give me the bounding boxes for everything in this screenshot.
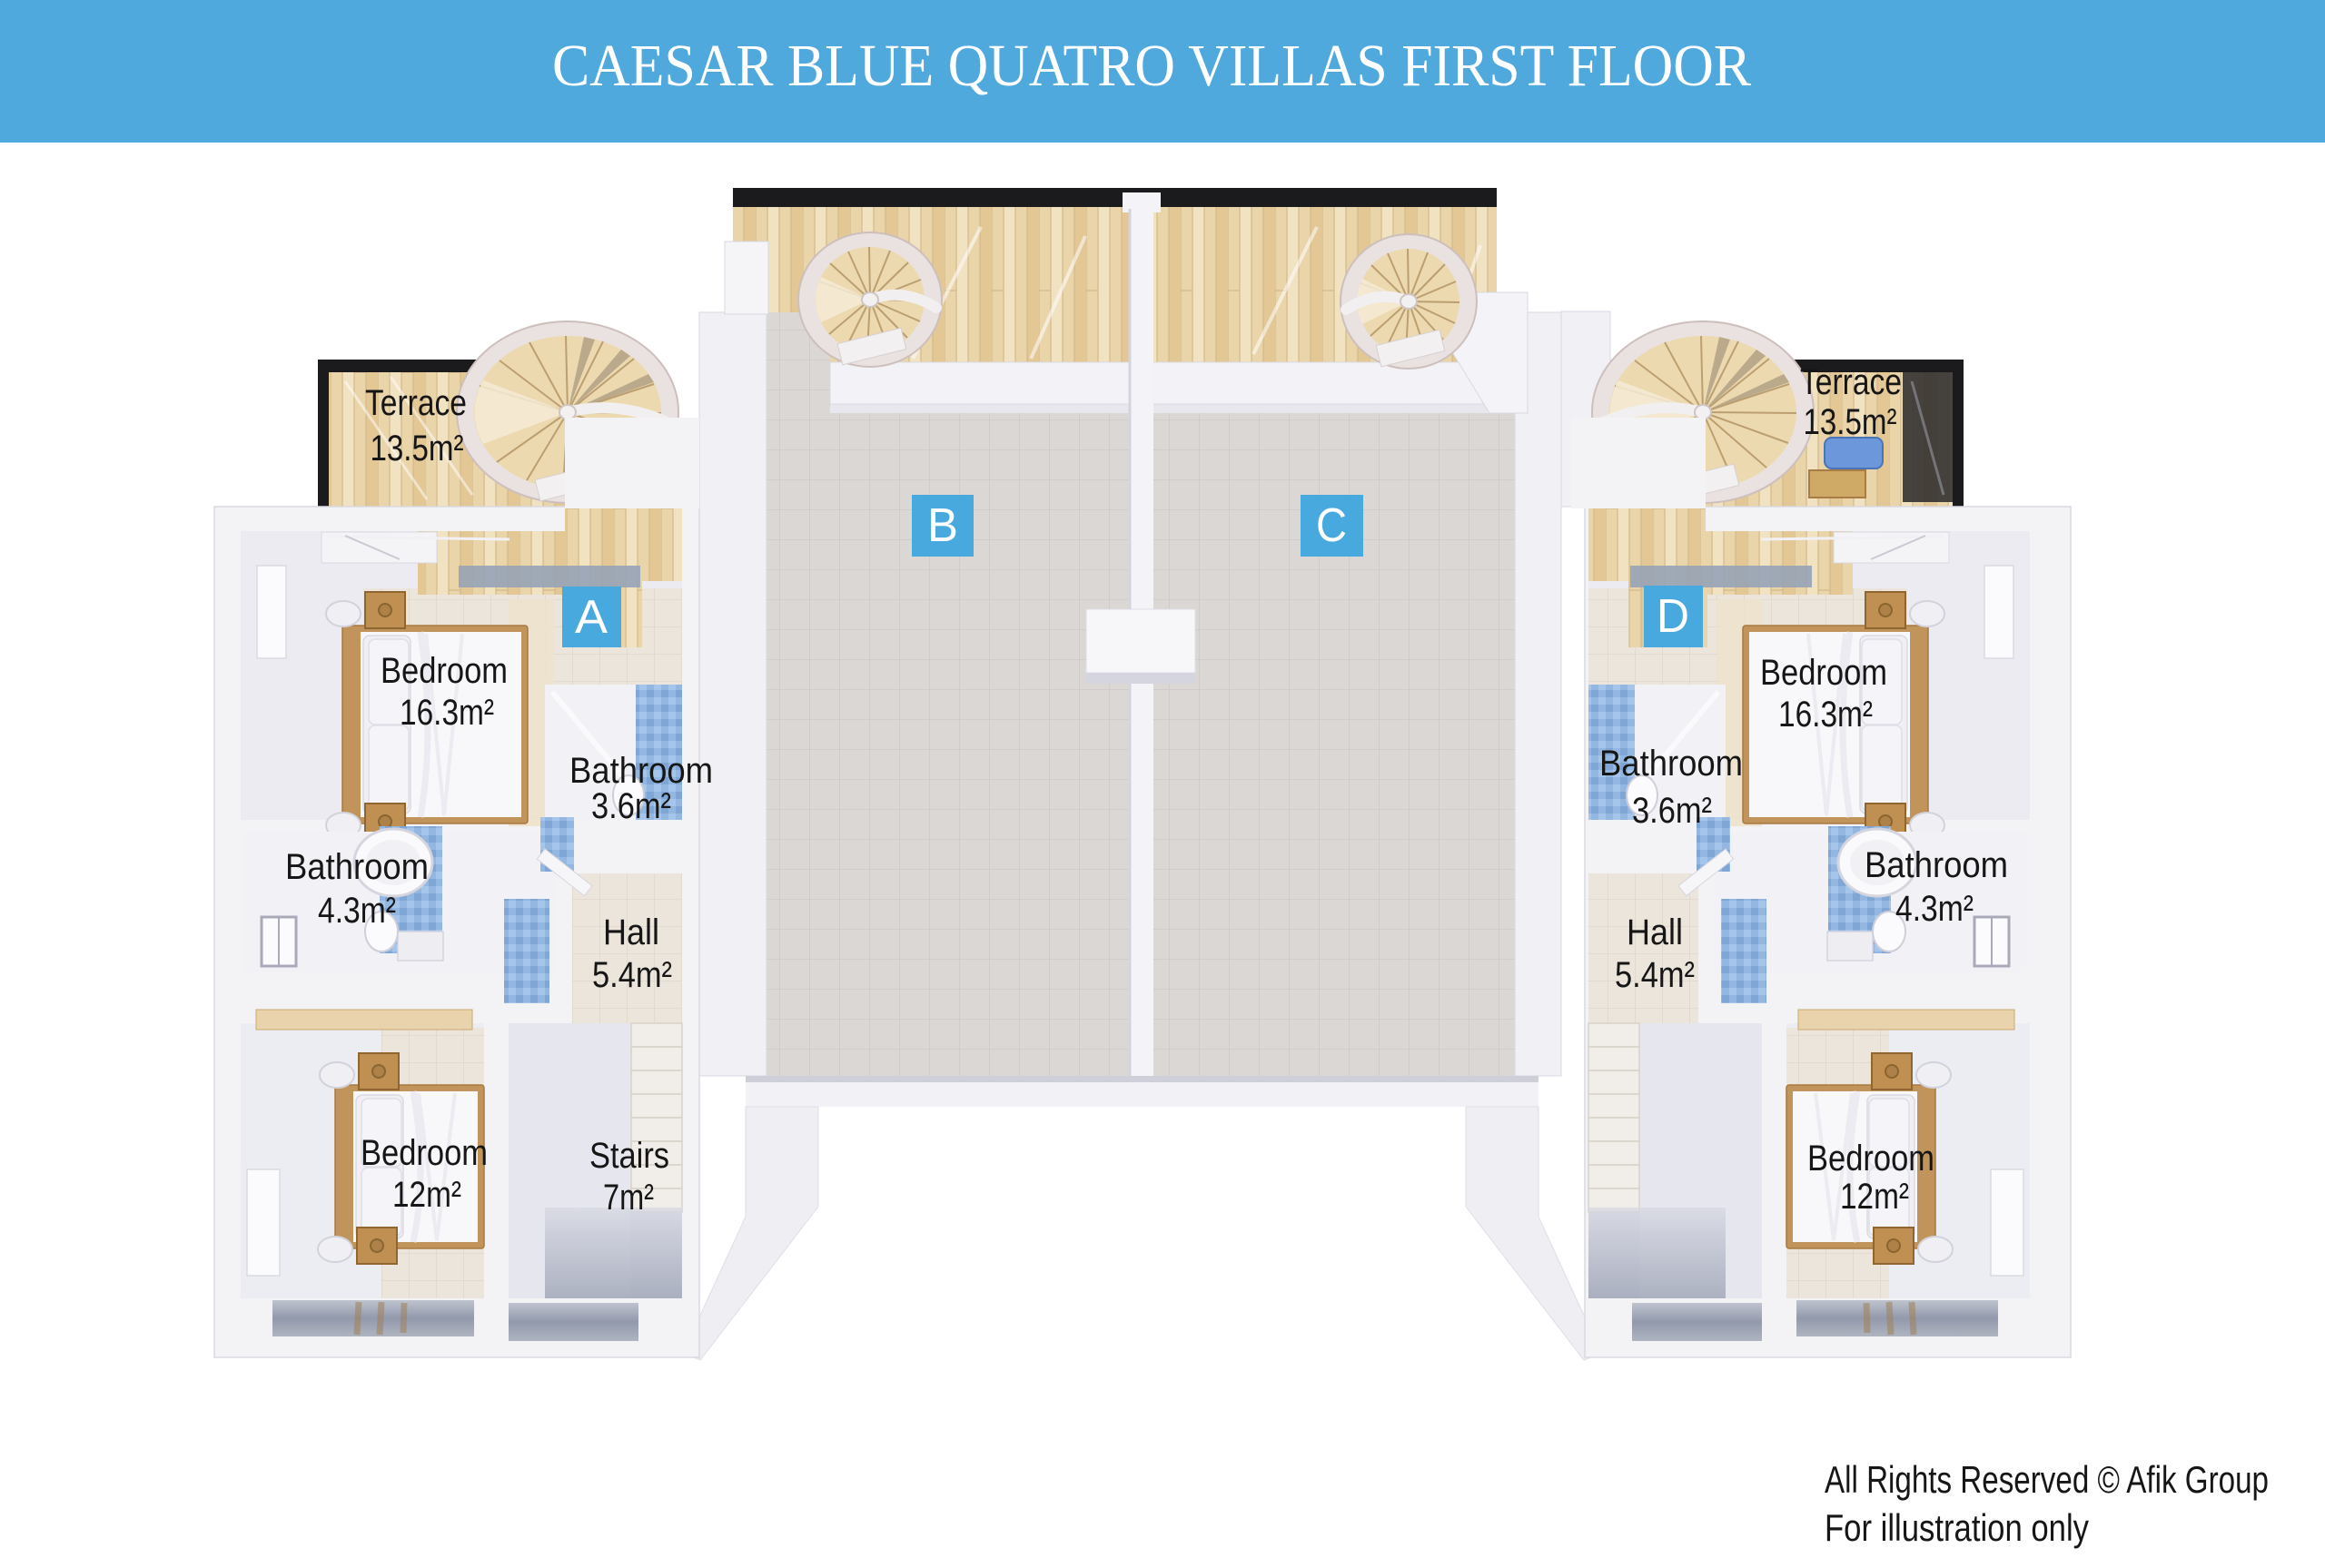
svg-text:Stairs: Stairs	[589, 1136, 669, 1176]
svg-text:3.6m²: 3.6m²	[591, 786, 671, 826]
svg-text:Bedroom: Bedroom	[361, 1133, 488, 1173]
svg-text:16.3m²: 16.3m²	[400, 693, 494, 733]
svg-text:Terrace: Terrace	[365, 383, 467, 423]
svg-text:Terrace: Terrace	[1800, 362, 1902, 402]
svg-text:Bathroom: Bathroom	[569, 751, 713, 791]
svg-text:All Rights Reserved © Afik Gro: All Rights Reserved © Afik Group	[1825, 1458, 2269, 1501]
svg-text:B: B	[927, 499, 958, 552]
svg-text:7m²: 7m²	[603, 1178, 654, 1218]
svg-text:D: D	[1657, 590, 1689, 643]
svg-text:13.5m²: 13.5m²	[371, 429, 464, 468]
svg-text:3.6m²: 3.6m²	[1632, 791, 1712, 831]
svg-text:Bedroom: Bedroom	[1760, 653, 1887, 693]
svg-text:A: A	[575, 591, 608, 644]
svg-text:5.4m²: 5.4m²	[592, 955, 672, 995]
svg-text:Bedroom: Bedroom	[381, 651, 508, 691]
svg-text:5.4m²: 5.4m²	[1615, 955, 1695, 995]
svg-text:Bedroom: Bedroom	[1807, 1139, 1934, 1178]
svg-text:Bathroom: Bathroom	[1865, 845, 2008, 885]
svg-text:4.3m²: 4.3m²	[1895, 889, 1974, 929]
svg-text:CAESAR BLUE QUATRO VILLAS FIRS: CAESAR BLUE QUATRO VILLAS FIRST FLOOR	[552, 33, 1751, 99]
svg-text:Bathroom: Bathroom	[1599, 744, 1743, 784]
svg-text:13.5m²: 13.5m²	[1804, 402, 1897, 442]
svg-text:12m²: 12m²	[392, 1175, 461, 1215]
svg-text:C: C	[1316, 499, 1347, 552]
svg-text:Hall: Hall	[1627, 912, 1683, 952]
svg-text:Bathroom: Bathroom	[285, 847, 429, 887]
svg-text:12m²: 12m²	[1840, 1177, 1909, 1217]
svg-text:For illustration only: For illustration only	[1825, 1506, 2089, 1549]
svg-text:Hall: Hall	[603, 912, 659, 952]
svg-text:16.3m²: 16.3m²	[1778, 695, 1873, 735]
svg-text:4.3m²: 4.3m²	[318, 891, 396, 931]
